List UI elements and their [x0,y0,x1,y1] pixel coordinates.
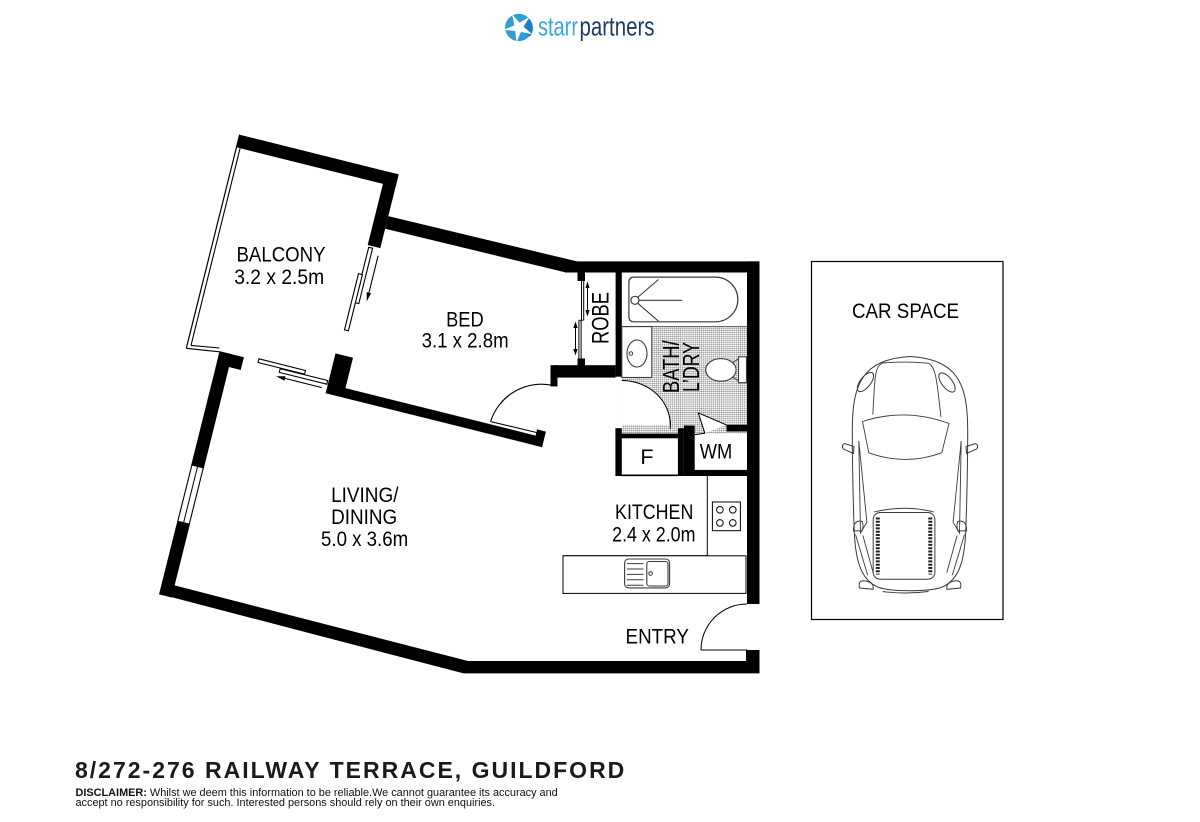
svg-text:3.1 x 2.8m: 3.1 x 2.8m [422,329,509,353]
svg-text:WM: WM [700,439,733,463]
svg-text:5.0 x 3.6m: 5.0 x 3.6m [321,527,408,551]
svg-text:DINING: DINING [331,505,397,529]
svg-text:CAR SPACE: CAR SPACE [852,299,959,323]
svg-text:LIVING/: LIVING/ [331,483,398,507]
svg-text:KITCHEN: KITCHEN [615,500,693,524]
svg-text:ROBE: ROBE [587,292,614,344]
svg-text:BALCONY: BALCONY [237,242,326,266]
svg-text:ENTRY: ENTRY [626,624,689,648]
svg-text:2.4 x 2.0m: 2.4 x 2.0m [612,522,695,546]
svg-text:3.2 x 2.5m: 3.2 x 2.5m [234,265,324,289]
svg-text:F: F [640,445,653,469]
svg-text:L’DRY: L’DRY [678,342,704,392]
